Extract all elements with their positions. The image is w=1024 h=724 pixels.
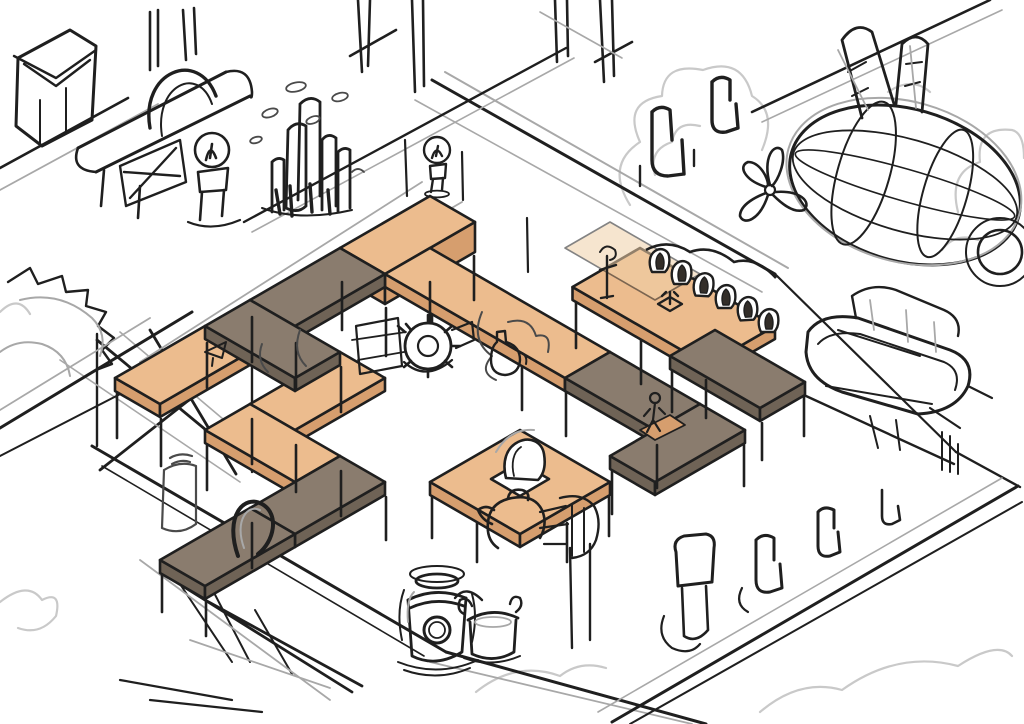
- edge-pipes-top: [640, 77, 738, 186]
- chimney-cluster: [262, 98, 352, 216]
- airship-propeller: [740, 148, 806, 221]
- boiler-machine: [14, 8, 252, 218]
- bulb-lamp-center: [424, 137, 450, 197]
- bulb-lamp-left: [188, 133, 240, 227]
- elbow-pipe: [661, 534, 714, 651]
- scaffold-posts: [350, 0, 632, 92]
- barrel-and-pot: [398, 566, 521, 676]
- airship-gondola: [806, 287, 992, 450]
- concept-sketch: [0, 0, 1024, 724]
- sketch-canvas: [0, 0, 1024, 724]
